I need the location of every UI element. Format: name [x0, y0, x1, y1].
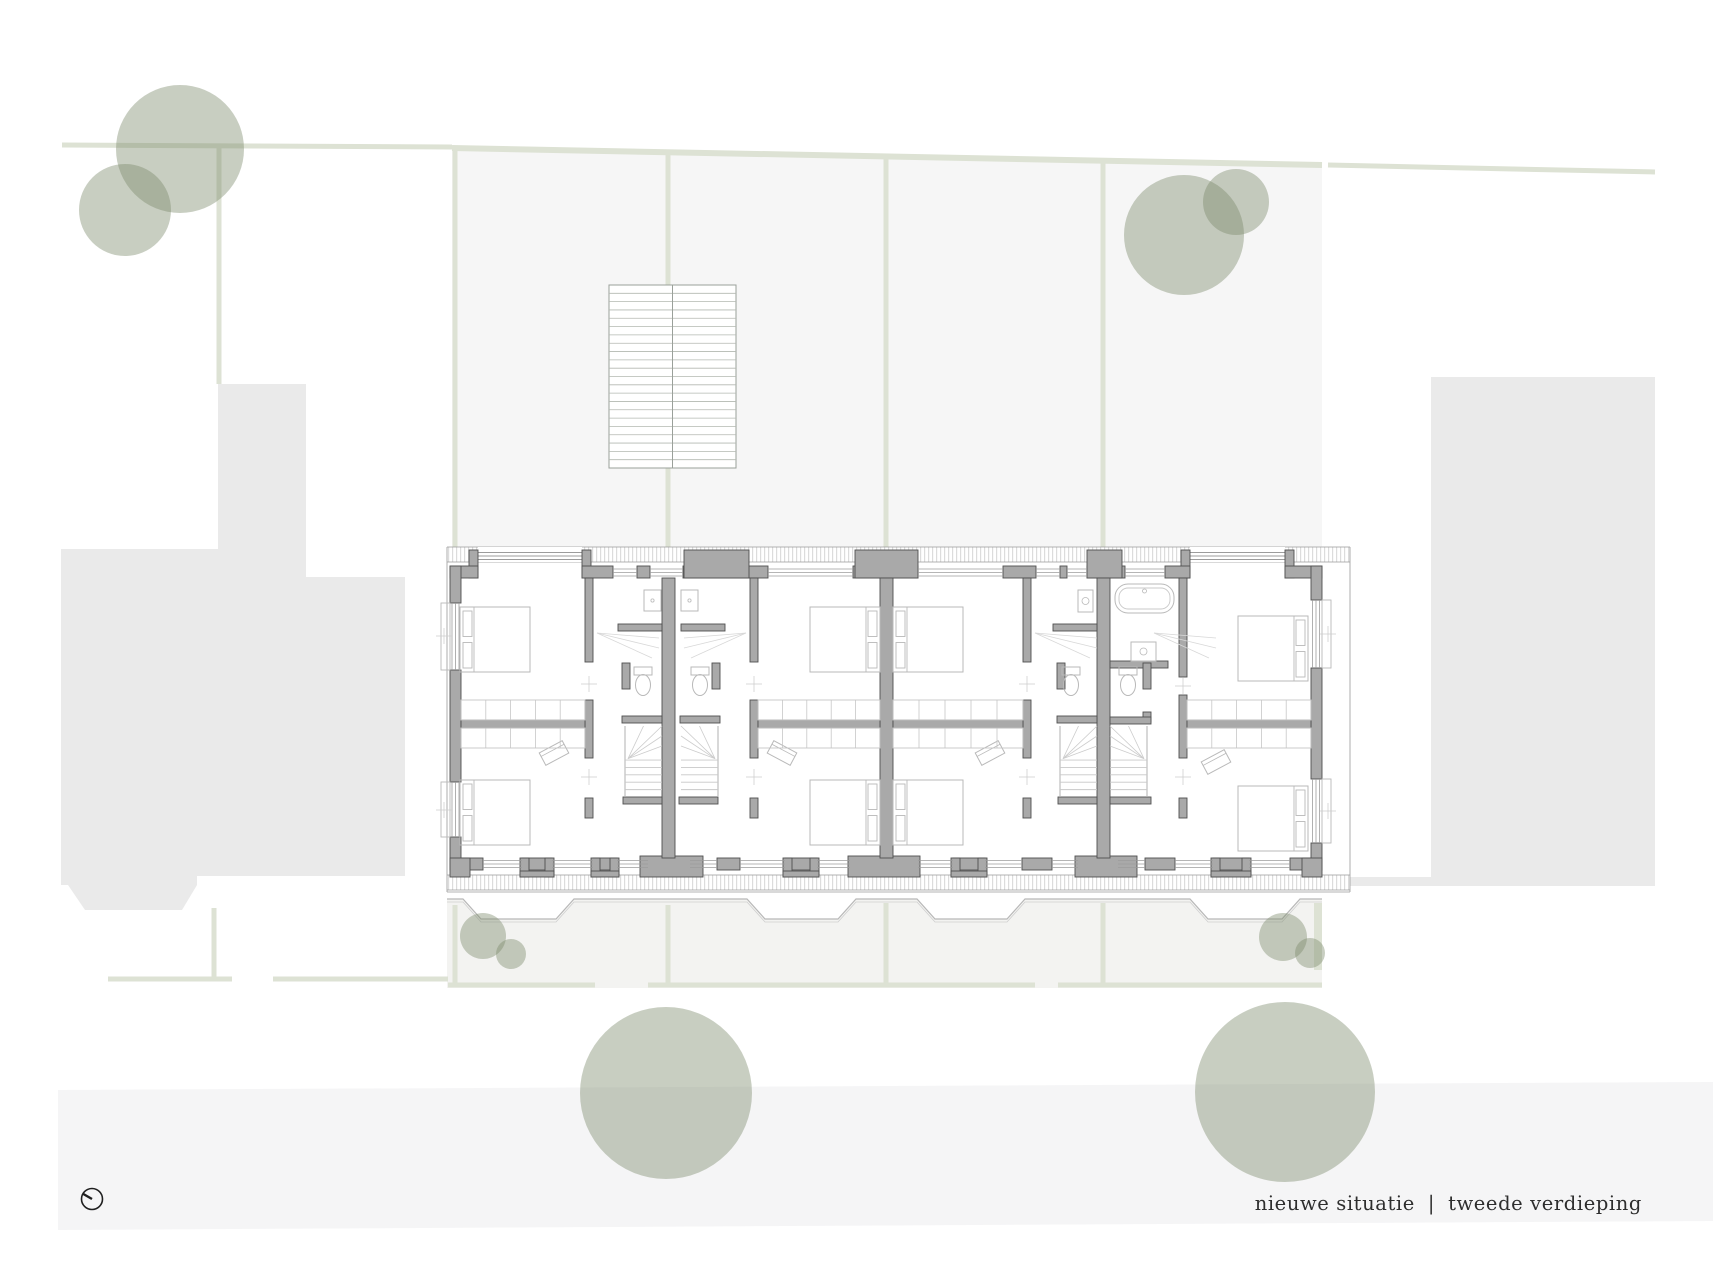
drawing-caption: nieuwe situatie|tweede verdieping: [1255, 1192, 1642, 1215]
caption-separator: |: [1428, 1192, 1435, 1215]
drawing-page: nieuwe situatie|tweede verdieping: [0, 0, 1713, 1288]
floor-plan-layer: [436, 547, 1350, 892]
caption-phase: nieuwe situatie: [1255, 1192, 1415, 1215]
caption-floor: tweede verdieping: [1448, 1192, 1642, 1215]
site-plan-drawing: [0, 0, 1713, 1288]
